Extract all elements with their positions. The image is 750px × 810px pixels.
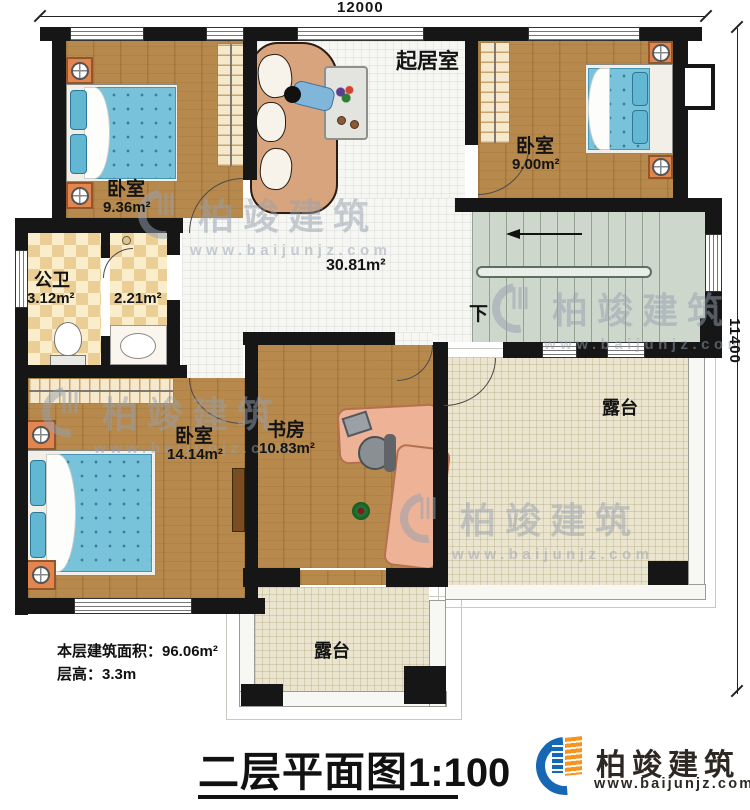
wall: [673, 27, 688, 200]
room-label-bedroom-bl: 卧室: [175, 427, 213, 448]
pillow-icon: [632, 72, 648, 106]
wall: [243, 568, 300, 587]
stairs-direction-label: 下: [469, 305, 488, 326]
terrace-bottom-floor: [255, 587, 429, 691]
watermark-name: 柏竣建筑: [198, 188, 378, 240]
room-label-study: 书房: [267, 421, 305, 442]
dimension-right: 11400: [726, 318, 743, 364]
terrace-door-threshold: [300, 570, 386, 585]
wall: [101, 233, 110, 258]
room-area-study: 10.83m²: [259, 441, 315, 458]
wardrobe-icon: [217, 43, 244, 167]
watermark-logo-icon: [482, 273, 552, 343]
brand-logo-building-orange: [565, 736, 582, 776]
watermark: 柏竣建筑 www.baijunjz.com: [138, 188, 391, 259]
table-flowers: [334, 84, 356, 104]
pillow-icon: [632, 110, 648, 144]
window-icon: [74, 598, 192, 614]
hall-floor-left: [182, 332, 243, 378]
wall: [386, 568, 433, 587]
pillow-icon: [30, 512, 46, 558]
room-area-vanity: 2.21m²: [114, 291, 162, 308]
person-head: [284, 86, 301, 103]
room-area-bedroom-tl: 9.36m²: [103, 200, 151, 217]
watermark-name: 柏竣建筑: [460, 492, 640, 544]
room-label-bedroom-tl: 卧室: [107, 180, 145, 201]
window-icon: [297, 27, 424, 41]
hall-floor-study-door: [395, 332, 433, 345]
wall: [243, 27, 257, 180]
chair-back: [384, 434, 396, 472]
nightstand-icon: [648, 155, 673, 179]
wall: [101, 336, 110, 365]
room-label-terrace-right: 露台: [602, 399, 638, 419]
drawing-title: 二层平面图1:100: [198, 738, 510, 798]
room-area-living: 30.81m²: [326, 257, 386, 275]
wall: [15, 365, 187, 378]
stair-arrow-icon: [506, 229, 520, 239]
watermark-logo-icon: [390, 483, 460, 553]
nightstand-icon: [648, 41, 673, 64]
dimension-line-top: [40, 16, 706, 17]
title-underline: [198, 795, 458, 799]
window-icon: [70, 27, 144, 41]
room-label-bath: 公卫: [34, 271, 70, 291]
wall: [455, 198, 722, 212]
drawing-title-text: 二层平面图: [198, 738, 408, 798]
watermark: 柏竣建筑 www.baijunjz.com: [492, 282, 745, 353]
stair-handrail: [476, 266, 652, 278]
wall: [245, 332, 258, 598]
window-icon: [206, 27, 244, 41]
nightstand-icon: [66, 57, 93, 84]
wall: [15, 365, 28, 615]
brand-logo-building-blue: [552, 741, 563, 773]
shower-drain-icon: [122, 236, 131, 245]
watermark-url: www.baijunjz.com: [452, 546, 653, 563]
room-area-bedroom-tr: 9.00m²: [512, 157, 560, 174]
nightstand-icon: [26, 560, 56, 590]
room-label-bedroom-tr: 卧室: [516, 137, 554, 158]
bay-window-icon: [685, 64, 715, 110]
pillow-icon: [70, 90, 87, 130]
floor-height-note: 层高：3.3m: [57, 663, 136, 684]
table-cup: [350, 120, 359, 129]
stair-arrow-tail: [520, 233, 582, 235]
floor-area-note: 本层建筑面积：96.06m²: [57, 640, 218, 661]
corner-pillar: [648, 561, 688, 585]
terrace-right-parapet-south: [445, 584, 706, 600]
watermark-url: www.baijunjz.com: [544, 336, 745, 353]
toilet-icon: [54, 322, 82, 356]
corner-pillar: [241, 684, 283, 706]
watermark: 柏竣建筑 www.baijunjz.com: [400, 492, 653, 563]
watermark-logo-icon: [32, 377, 102, 447]
wardrobe-icon: [480, 42, 510, 144]
wall: [52, 27, 66, 232]
wall: [705, 212, 722, 234]
bed-sheet: [588, 68, 610, 150]
room-area-bath: 3.12m²: [27, 291, 75, 308]
sofa-cushion: [256, 102, 286, 142]
brand-website: www.baijunjz.com: [594, 776, 750, 792]
pillow-icon: [30, 460, 46, 506]
room-label-living: 起居室: [396, 50, 459, 73]
watermark-name: 柏竣建筑: [552, 282, 732, 334]
pillow-icon: [70, 134, 87, 174]
plant-icon: [352, 502, 370, 520]
wall-shelf-icon: [232, 468, 245, 532]
drawing-scale: 1:100: [408, 751, 510, 796]
nightstand-icon: [66, 182, 93, 209]
corner-pillar: [404, 666, 446, 704]
brand-logo-icon: [536, 737, 592, 795]
wall: [243, 332, 395, 345]
floor-plan-page: 起居室 30.81m² 卧室 9.36m² 卧室 9.00m² 公卫 3.12m…: [0, 0, 750, 810]
terrace-right-parapet-east: [688, 357, 705, 597]
table-cup: [337, 116, 346, 125]
window-icon: [528, 27, 640, 41]
wall: [465, 27, 478, 145]
room-label-terrace-bottom: 露台: [314, 642, 350, 662]
dimension-top: 12000: [337, 0, 384, 17]
sink-icon: [120, 333, 156, 359]
room-area-bedroom-bl: 14.14m²: [167, 447, 223, 464]
